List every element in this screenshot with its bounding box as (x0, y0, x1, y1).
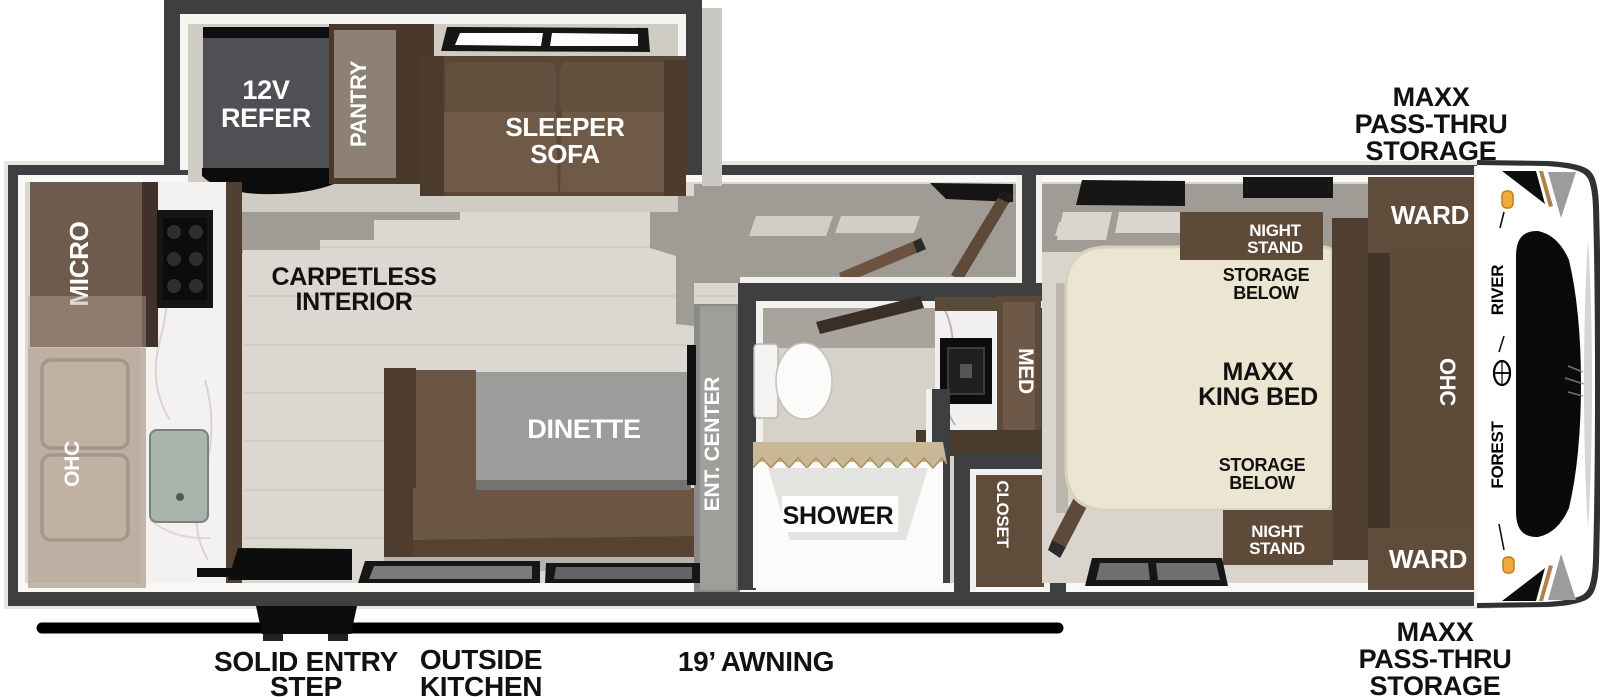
svg-text:STORAGE: STORAGE (1219, 455, 1306, 475)
svg-text:SHOWER: SHOWER (783, 502, 894, 530)
svg-text:BELOW: BELOW (1229, 473, 1295, 493)
svg-text:OHC: OHC (61, 441, 84, 487)
svg-text:WARD: WARD (1391, 200, 1469, 230)
svg-text:PANTRY: PANTRY (346, 60, 371, 147)
svg-text:CLOSET: CLOSET (993, 480, 1012, 548)
svg-text:INTERIOR: INTERIOR (295, 288, 412, 316)
svg-text:FOREST: FOREST (1488, 421, 1507, 489)
svg-text:ENT. CENTER: ENT. CENTER (701, 377, 724, 512)
svg-text:RIVER: RIVER (1488, 265, 1507, 315)
svg-text:19’ AWNING: 19’ AWNING (678, 646, 834, 677)
svg-text:MAXX: MAXX (1397, 617, 1474, 647)
svg-text:REFER: REFER (221, 103, 311, 133)
svg-text:KING BED: KING BED (1198, 383, 1318, 411)
svg-text:STORAGE: STORAGE (1366, 136, 1497, 166)
svg-text:STAND: STAND (1247, 238, 1303, 257)
svg-text:MAXX: MAXX (1393, 82, 1470, 112)
svg-text:MAXX: MAXX (1222, 358, 1294, 386)
svg-text:WARD: WARD (1389, 544, 1467, 574)
svg-text:MICRO: MICRO (64, 221, 94, 306)
svg-text:STEP: STEP (270, 671, 342, 697)
svg-text:SLEEPER: SLEEPER (505, 112, 625, 142)
svg-text:PASS-THRU: PASS-THRU (1355, 109, 1508, 139)
svg-text:MED: MED (1014, 348, 1037, 394)
svg-text:STORAGE: STORAGE (1370, 671, 1501, 697)
svg-text:DINETTE: DINETTE (527, 414, 640, 444)
svg-text:PASS-THRU: PASS-THRU (1359, 644, 1512, 674)
svg-text:12V: 12V (242, 75, 289, 105)
svg-text:STAND: STAND (1249, 539, 1305, 558)
svg-text:KITCHEN: KITCHEN (420, 671, 542, 697)
svg-text:CARPETLESS: CARPETLESS (271, 263, 436, 291)
svg-text:STORAGE: STORAGE (1223, 265, 1310, 285)
svg-text:BELOW: BELOW (1233, 283, 1299, 303)
svg-text:OHC: OHC (1435, 358, 1460, 406)
svg-text:SOFA: SOFA (530, 139, 600, 169)
